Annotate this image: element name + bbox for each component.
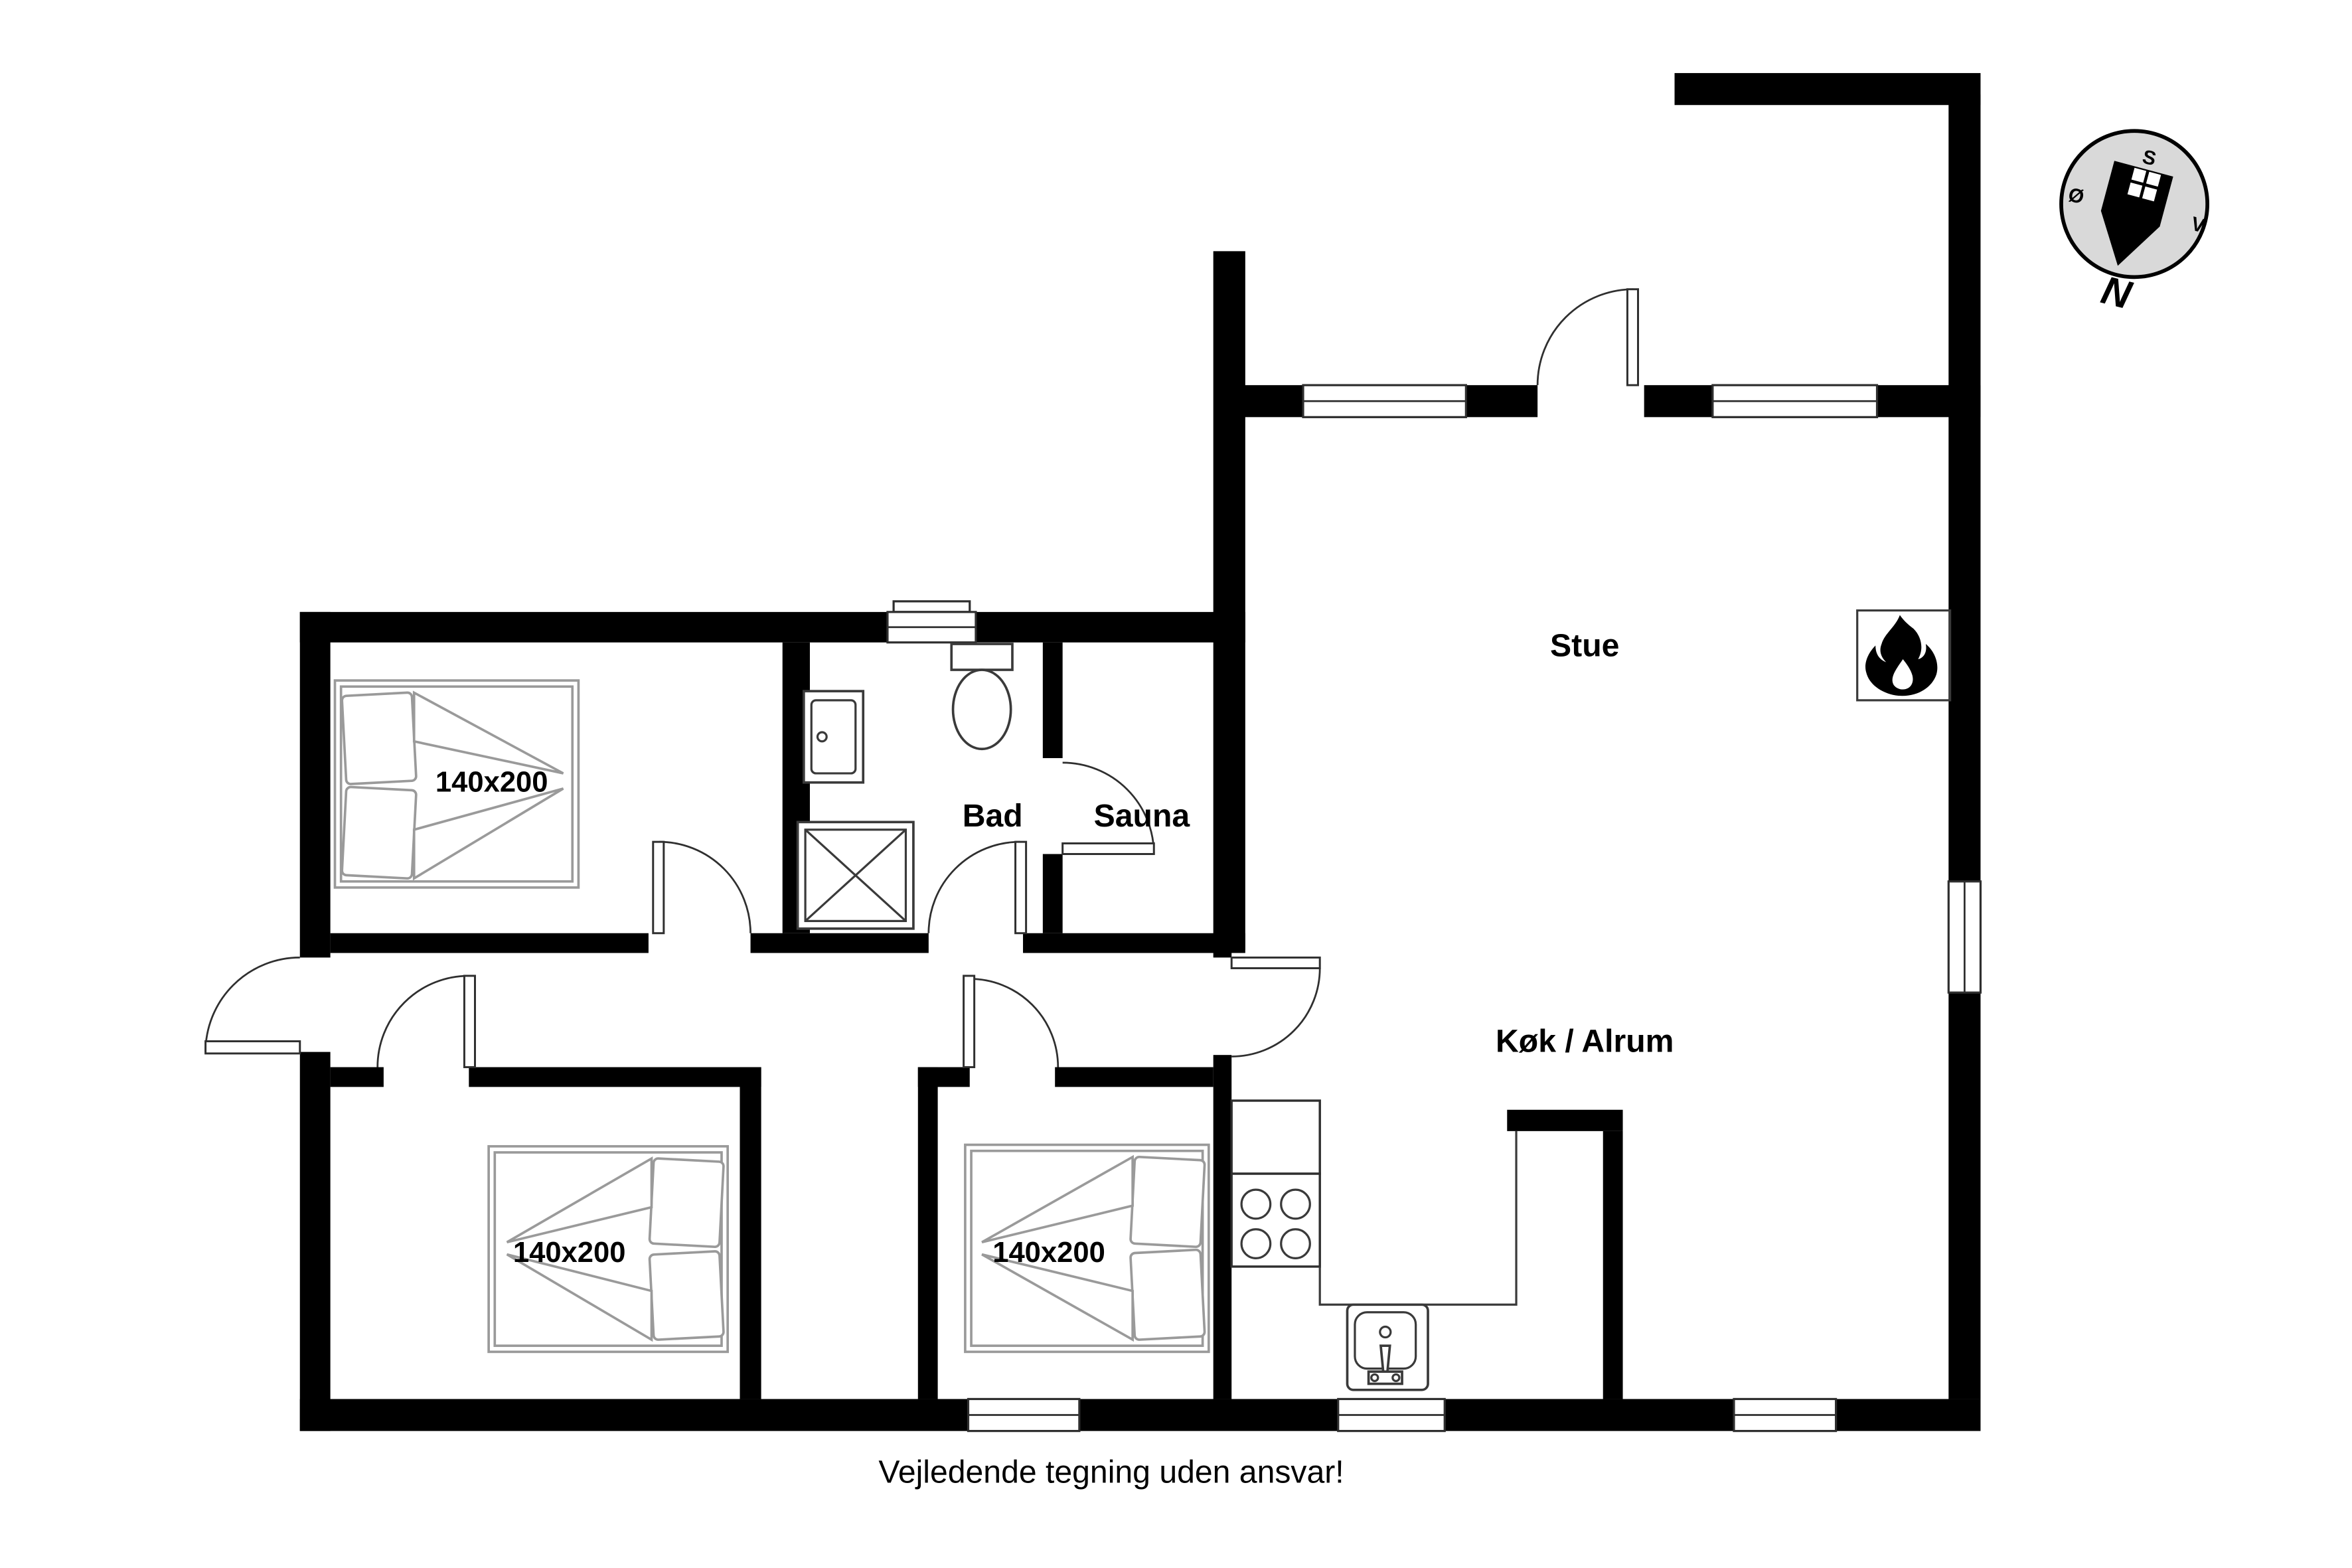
wall-bedroom2-right (740, 1067, 761, 1399)
wall-bottom-2 (1079, 1399, 1338, 1431)
fireplace (1857, 611, 1950, 700)
kitchen-cabinet (1231, 1101, 1320, 1174)
kitchen-sink-icon (1347, 1304, 1428, 1389)
door-stue-terrace (1537, 289, 1638, 385)
shower-icon (798, 822, 913, 929)
window-right-wall (1948, 882, 1980, 992)
label-bed3-size: 140x200 (992, 1237, 1105, 1269)
front-door (206, 957, 300, 1053)
kitchen-counter-edge (1320, 1131, 1516, 1304)
wall-hall-top-3 (1023, 933, 1245, 953)
door-bedroom3 (964, 976, 1058, 1067)
label-stue: Stue (1550, 627, 1619, 663)
wall-stue-north-3 (1644, 385, 1713, 417)
window-stue-north-1 (1303, 385, 1466, 417)
door-bedroom2 (378, 976, 475, 1067)
wall-stue-north-4 (1877, 385, 1981, 417)
window-bottom-kitchen-right (1734, 1399, 1836, 1431)
compass-north-label: N (2097, 268, 2137, 318)
kitchen-fixtures (1231, 1101, 1516, 1390)
wall-bottom-4 (1836, 1399, 1981, 1431)
wall-right-lower (1948, 992, 1980, 1399)
compass-rose-icon: S Ø V N (2061, 131, 2207, 317)
label-sauna: Sauna (1094, 798, 1191, 834)
wall-stue-left (1214, 251, 1245, 950)
label-kok-alrum: Køk / Alrum (1496, 1024, 1674, 1059)
wall-bedband-top-1 (300, 612, 888, 643)
wall-bad-sauna-2 (1043, 854, 1063, 933)
wall-bedroom3-right (1214, 1055, 1232, 1399)
wall-stue-north-2 (1466, 385, 1537, 417)
wall-hall-top-1 (331, 933, 649, 953)
wall-bad-sauna-1 (1043, 643, 1063, 758)
sink-icon (804, 691, 863, 783)
wall-bedband-top-2 (976, 612, 1245, 643)
wall-peninsula (1603, 1131, 1623, 1399)
label-bad: Bad (963, 798, 1023, 834)
wall-bedroom2-top-1 (331, 1067, 384, 1087)
wall-right-upper (1948, 94, 1980, 882)
toilet-icon (951, 644, 1012, 749)
door-hall-kitchen (1231, 957, 1320, 1056)
wall-bedroom2-top-2 (469, 1067, 761, 1087)
window-bottom-bedroom3 (968, 1399, 1079, 1431)
window-bath (888, 601, 976, 643)
wall-terrace-top (1675, 73, 1981, 105)
wall-peninsula-stub (1507, 1110, 1622, 1131)
door-bedroom1 (653, 842, 751, 933)
window-bottom-kitchen-sink (1338, 1399, 1445, 1431)
stove-icon (1231, 1174, 1320, 1267)
floor-plan-drawing: S Ø V N Stue Køk / Alrum Bad Sauna 140x2… (0, 0, 2352, 1568)
floor-plan-page: S Ø V N Stue Køk / Alrum Bad Sauna 140x2… (0, 0, 2352, 1568)
wall-bedroom3-top-2 (1055, 1067, 1213, 1087)
label-bed1-size: 140x200 (435, 766, 548, 798)
disclaimer-text: Vejledende tegning uden ansvar! (878, 1454, 1344, 1490)
wall-left-lower (300, 1052, 331, 1431)
wall-left-upper (300, 612, 331, 958)
wall-bottom-1 (300, 1399, 969, 1431)
wall-bottom-3 (1445, 1399, 1734, 1431)
label-bed2-size: 140x200 (513, 1237, 626, 1269)
bathroom-fixtures (798, 644, 1012, 929)
door-bath (929, 842, 1026, 933)
wall-hall-top-2 (751, 933, 929, 953)
wall-bedroom3-left (918, 1067, 938, 1399)
window-stue-north-2 (1713, 385, 1877, 417)
